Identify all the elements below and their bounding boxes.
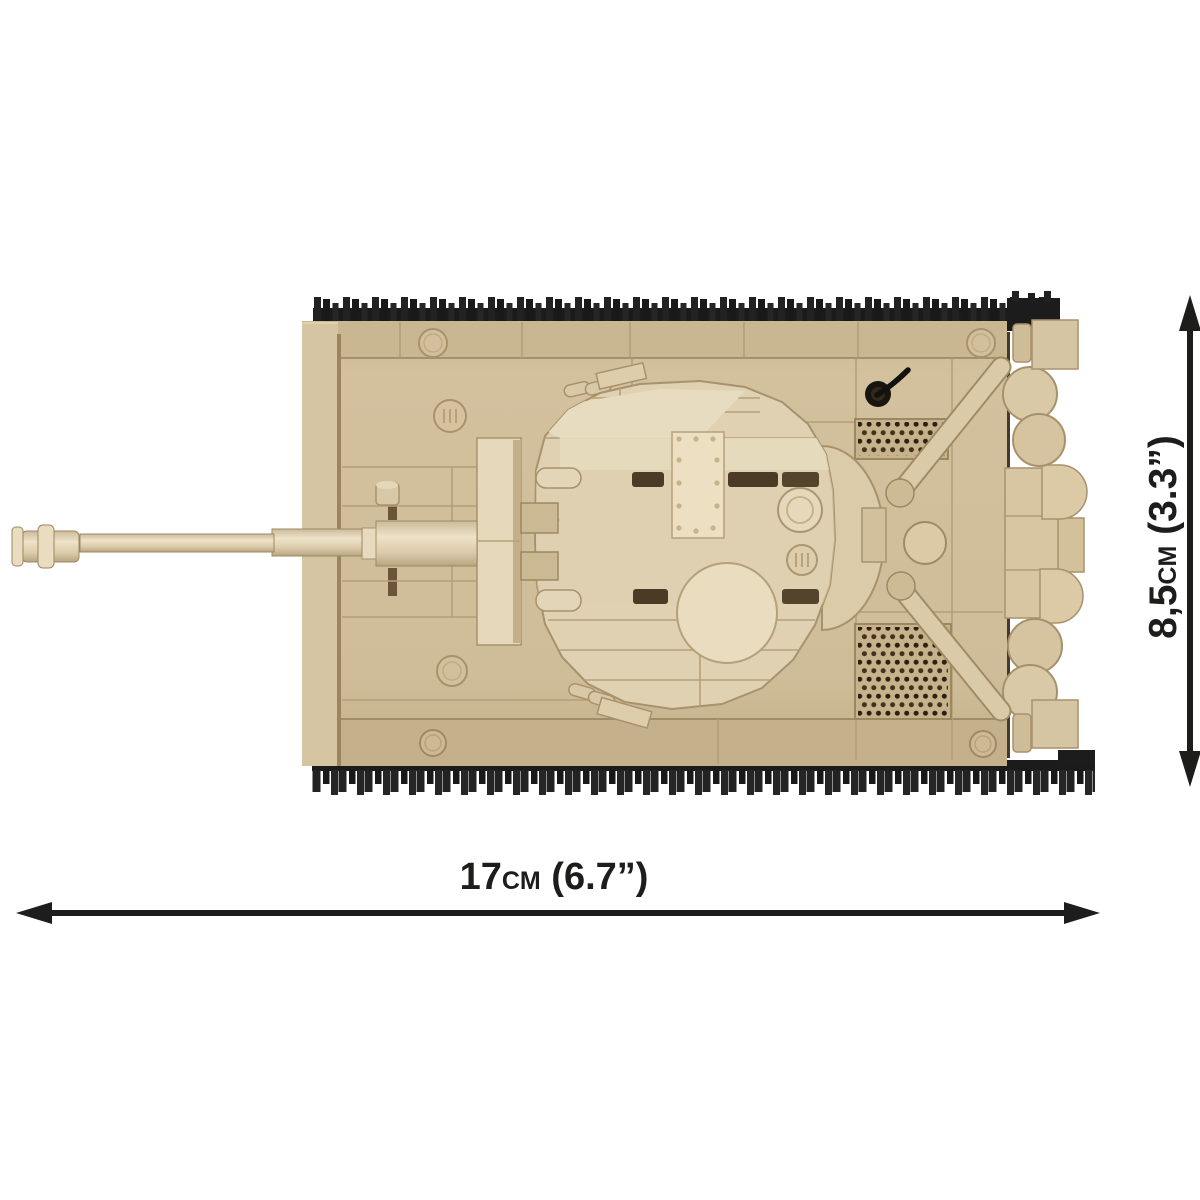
svg-text:8,5CM (3.3”): 8,5CM (3.3”) <box>1142 435 1185 639</box>
svg-text:17CM (6.7”): 17CM (6.7”) <box>460 856 649 898</box>
